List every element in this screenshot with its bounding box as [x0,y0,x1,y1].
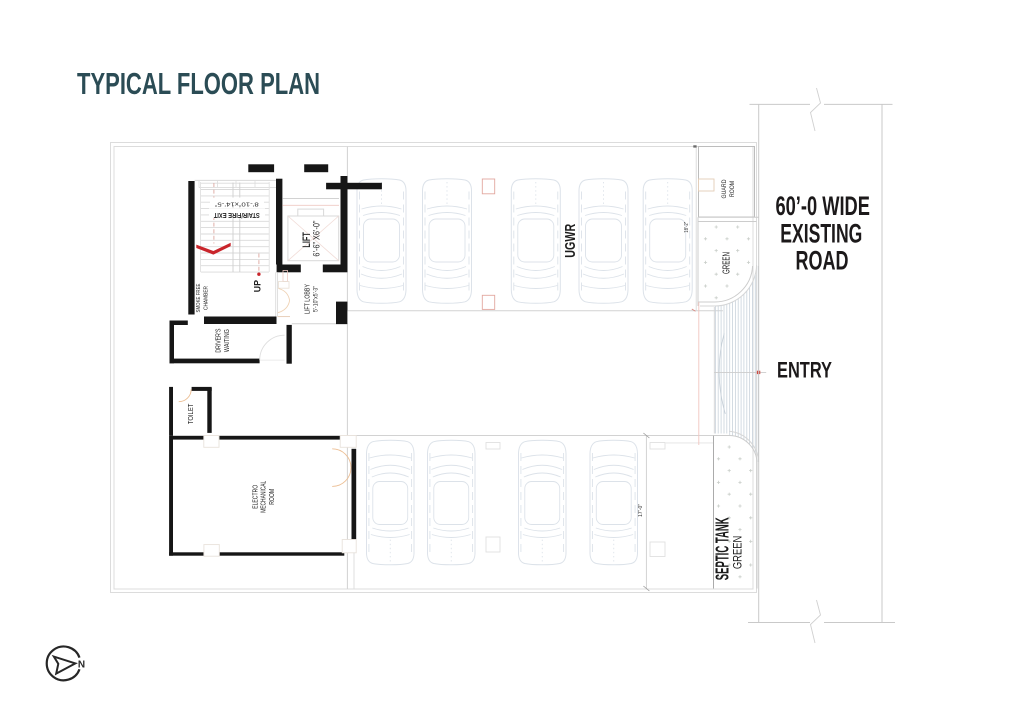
svg-text:GUARD: GUARD [721,179,728,198]
svg-text:ROAD: ROAD [796,246,849,276]
svg-text:60’-0 WIDE: 60’-0 WIDE [775,191,870,221]
svg-text:STAIR/FIRE EXIT: STAIR/FIRE EXIT [213,211,260,218]
svg-text:TOILET: TOILET [186,403,195,424]
svg-text:UGWR: UGWR [563,223,579,257]
svg-text:18’-2”: 18’-2” [684,222,690,233]
svg-text:8’-10”x14’-5”: 8’-10”x14’-5” [215,201,259,207]
svg-text:UP: UP [252,280,262,292]
svg-text:WAITING: WAITING [222,329,231,352]
svg-text:6’-6” X6’-0”: 6’-6” X6’-0” [312,221,323,257]
svg-text:ROOM: ROOM [267,489,276,505]
svg-text:CHAMBER: CHAMBER [204,286,210,310]
svg-text:SEPTIC TANK: SEPTIC TANK [712,517,732,580]
svg-text:ROOM: ROOM [729,181,736,197]
svg-text:SMOKE FREE: SMOKE FREE [196,283,202,312]
svg-text:ENTRY: ENTRY [777,358,832,383]
svg-text:N: N [78,660,85,671]
svg-text:GREEN: GREEN [721,252,732,274]
svg-text:17’-0”: 17’-0” [638,504,644,517]
svg-text:EXISTING: EXISTING [780,218,862,248]
svg-text:GREEN: GREEN [731,536,745,570]
svg-text:5’-10”x5’-3”: 5’-10”x5’-3” [313,286,320,312]
svg-text:LIFT LOBBY: LIFT LOBBY [303,284,312,314]
svg-text:TYPICAL FLOOR PLAN: TYPICAL FLOOR PLAN [77,66,320,101]
